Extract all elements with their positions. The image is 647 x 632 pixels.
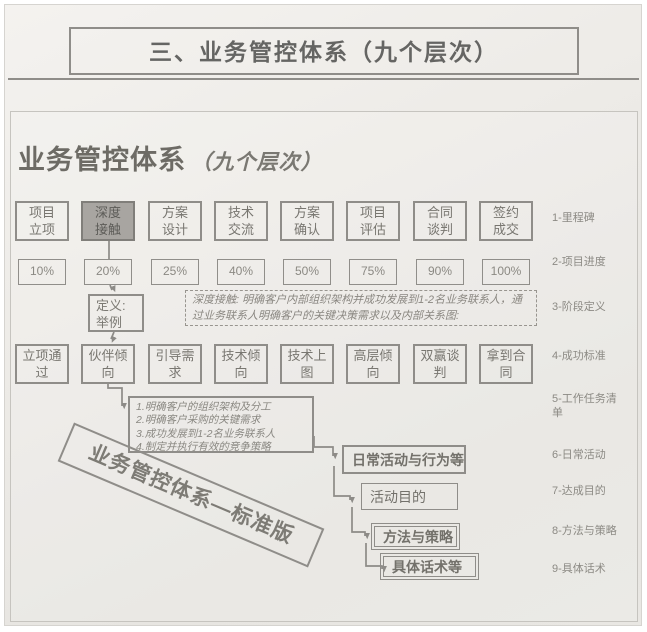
criteria-box-approval: 立项通 过 [15,344,69,384]
stage-box-signing-deal: 签约 成交 [479,201,533,241]
cascade-box-activity-purpose: 活动目的 [361,483,458,510]
progress-box-40: 40% [217,259,265,285]
title-divider [8,78,639,80]
cascade-box-specific-scripts: 具体话术等 [380,553,479,580]
level-label-7-achieve-purpose: 7-达成目的 [552,484,644,498]
progress-box-10: 10% [18,259,66,285]
criteria-box-executive-preference: 高层倾 向 [346,344,400,384]
stage-box-solution-confirm: 方案 确认 [280,201,334,241]
level-label-4-success-criteria: 4-成功标准 [552,349,644,363]
diagram-heading-suffix: （九个层次） [190,151,322,174]
stage-box-contract-negotiation: 合同 谈判 [413,201,467,241]
cascade-box-daily-activities: 日常活动与行为等 [342,445,466,474]
progress-box-75: 75% [349,259,397,285]
definition-example-box: 定义: 举例 [88,294,144,332]
stage-box-deep-contact: 深度 接触 [81,201,135,241]
diagram-heading-text: 业务管控体系 [18,145,186,175]
cascade-box-methods-strategy: 方法与策略 [371,523,460,550]
level-label-3-stage-definition: 3-阶段定义 [552,300,644,314]
criteria-box-guide-demand: 引导需 求 [148,344,202,384]
stage-box-project-evaluation: 项目 评估 [346,201,400,241]
level-label-6-daily-activities: 6-日常活动 [552,448,644,462]
task-list-box: 1.明确客户的组织架构及分工 2.明确客户采购的关键需求 3.成功发展到1-2名… [128,396,314,453]
criteria-box-get-contract: 拿到合 同 [479,344,533,384]
progress-box-25: 25% [151,259,199,285]
criteria-box-tech-preference: 技术倾 向 [214,344,268,384]
stage-box-project-initiation: 项目 立项 [15,201,69,241]
progress-box-20: 20% [84,259,132,285]
stage-box-technical-exchange: 技术 交流 [214,201,268,241]
progress-box-90: 90% [416,259,464,285]
page-title: 三、业务管控体系（九个层次） [69,27,579,75]
stage-box-solution-design: 方案 设计 [148,201,202,241]
criteria-box-tech-drawing: 技术上 图 [280,344,334,384]
deep-contact-note: 深度接触: 明确客户内部组织架构并成功发展到1-2名业务联系人，通过业务联系人明… [185,290,537,326]
level-label-8-methods-strategy: 8-方法与策略 [552,524,644,538]
level-label-5-task-list: 5-工作任务清 单 [552,392,644,421]
diagram-heading: 业务管控体系 （九个层次） [18,138,322,177]
progress-box-50: 50% [283,259,331,285]
slide-photo-page: { "page": { "title": "三、业务管控体系（九个层次）", "… [0,0,647,632]
level-label-2-project-progress: 2-项目进度 [552,255,644,269]
level-label-1-milestone: 1-里程碑 [552,211,644,225]
criteria-box-winwin-negotiation: 双赢谈 判 [413,344,467,384]
level-label-9-specific-scripts: 9-具体话术 [552,562,644,576]
progress-box-100: 100% [482,259,530,285]
criteria-box-partner-preference: 伙伴倾 向 [81,344,135,384]
